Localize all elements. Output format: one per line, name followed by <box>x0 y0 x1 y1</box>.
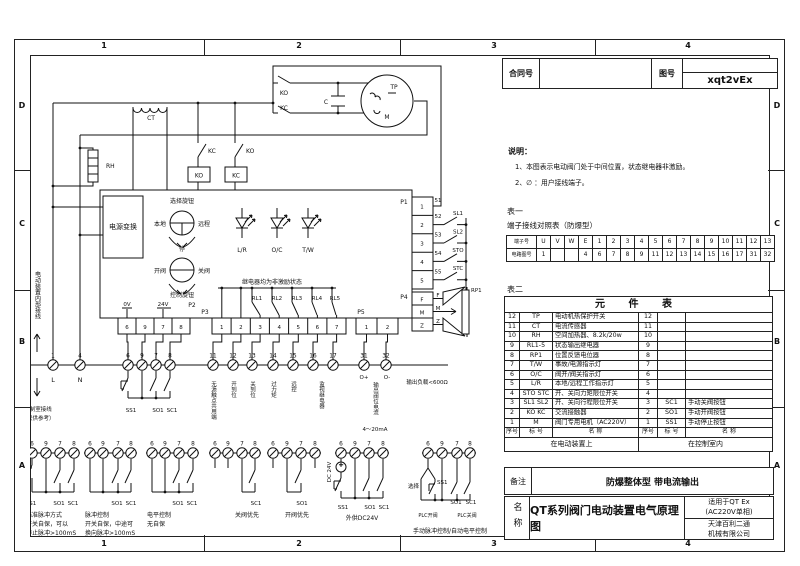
p1-label: P1 <box>400 199 408 206</box>
component-cell: 事故/电源指示灯 <box>553 360 639 370</box>
table2-title: 元 件 表 <box>505 297 773 313</box>
g1-line1: 脉冲控制 <box>85 511 109 519</box>
g0-line2: 开关自保，可以 <box>30 520 68 528</box>
g1-line3: 换向脉冲>100mS <box>85 529 135 537</box>
terminal-number: 11 <box>209 354 217 360</box>
t1-circuit-cell: 14 <box>691 249 705 262</box>
zone-col: 4 <box>681 41 695 50</box>
sl2-label: SL2 <box>453 229 463 235</box>
term-label-1617: 监视继电器 <box>318 380 325 410</box>
t1-circuit-cell: 17 <box>733 249 747 262</box>
note-line: 1、本图表示电动阀门处于中间位置，状态继电器非激励。 <box>515 161 772 171</box>
rl5-label: RL5 <box>330 296 341 302</box>
terminal-number: 6 <box>88 442 92 448</box>
terminal-number: 17 <box>329 354 337 360</box>
terminal-number: 8 <box>381 442 385 448</box>
junction-dot <box>441 499 444 502</box>
zone-col: 4 <box>681 539 695 548</box>
table2-footer-row: 序号 标 号 名 称 序号 标 号 名 称 <box>505 428 773 438</box>
zone-row: C <box>770 219 784 228</box>
wire-52: 52 <box>435 214 442 220</box>
t1-terminal-cell: 11 <box>733 236 747 249</box>
t1-circuit-row: 电路图号146789111213141516173132 <box>507 249 775 262</box>
junction-dot <box>240 287 243 290</box>
p5-label: P5 <box>357 309 365 316</box>
junction-dot <box>52 185 55 188</box>
component-row: 3SL1 SL2开、关向行程限位开关3SC1手动关阀按钮 <box>505 399 773 409</box>
terminal-number: 9 <box>44 442 48 448</box>
t2-foot-tag: 标 号 <box>520 428 553 438</box>
component-cell: 手动开阀按钮 <box>686 408 773 418</box>
drawing-no-value: xqt2vEx <box>683 73 777 88</box>
component-table: 元 件 表 12TP电动机热保护开关1211CT电流传感器1110RH空间加热器… <box>504 296 773 452</box>
terminal-number: 9 <box>101 442 105 448</box>
rl3-label: RL3 <box>292 296 303 302</box>
stc-label: STC <box>453 266 464 272</box>
terminal: 1 <box>48 354 58 371</box>
component-cell: T/W <box>520 360 553 370</box>
lamp-fault-power-icon <box>302 208 321 238</box>
terminal: 9 <box>437 442 447 459</box>
notes-title: 说明： <box>508 146 772 157</box>
schematic: 1469781112131415161731326978697869786978… <box>30 55 508 537</box>
junction-dot <box>337 112 340 115</box>
junction-dot <box>45 491 48 494</box>
wire-54: 54 <box>435 251 442 257</box>
component-cell <box>686 389 773 399</box>
contract-value <box>540 59 652 88</box>
component-cell: 交流接触器 <box>553 408 639 418</box>
terminal-number: 13 <box>248 354 256 360</box>
junction-dot <box>220 287 223 290</box>
output-current-label: 输出阀位电流 <box>372 381 379 417</box>
t1-circuit-cell: 16 <box>719 249 733 262</box>
component-cell: 7 <box>639 360 658 370</box>
component-cell: 3 <box>639 399 658 409</box>
component-cell: 阀门专用电机（AC220V） <box>553 418 639 428</box>
term-label-15: 远控 <box>290 380 297 394</box>
t1-terminal-cell: 10 <box>719 236 733 249</box>
terminal-number: 31 <box>360 354 368 360</box>
component-cell <box>658 389 686 399</box>
remark-label: 备注 <box>505 468 532 494</box>
g3-line1: 关阀优先 <box>235 511 259 519</box>
lamp-local-remote-icon <box>236 208 255 238</box>
component-cell: SO1 <box>658 408 686 418</box>
component-cell: 状态输出继电器 <box>553 341 639 351</box>
terminal: 31 <box>359 354 369 371</box>
component-cell: 开、关向行程限位开关 <box>553 399 639 409</box>
terminal: 7 <box>364 442 374 459</box>
tp-label: TP <box>389 84 398 91</box>
terminal-number: 8 <box>168 354 172 360</box>
so1-label: SO1 <box>152 408 163 414</box>
company: 天津百利二通 机械有限公司 <box>685 519 773 540</box>
t2-foot-name: 名 称 <box>553 428 639 438</box>
internal-wiring-note: 电动装置内部接线 <box>34 270 41 319</box>
title-strip: 合同号 图号 xqt2vEx <box>502 58 778 89</box>
terminal-number: 7 <box>116 442 120 448</box>
t1-terminal-cell: 9 <box>705 236 719 249</box>
component-cell: TP <box>520 313 553 323</box>
rl4-label: RL4 <box>312 296 323 302</box>
p4-label: P4 <box>400 294 408 301</box>
p1-cell: 3 <box>420 242 424 248</box>
g5-line1: 外供DC24V <box>346 514 379 522</box>
component-row: 7T/W事故/电源指示灯7 <box>505 360 773 370</box>
junction-dot <box>251 287 254 290</box>
junction-dot <box>465 260 468 263</box>
t1-terminal-cell: 3 <box>621 236 635 249</box>
terminal-number: 8 <box>191 442 195 448</box>
component-cell <box>658 332 686 342</box>
junction-dot <box>368 497 371 500</box>
component-cell: 电流传感器 <box>553 322 639 332</box>
t1-circuit-cell: 12 <box>663 249 677 262</box>
o-plus-label: O+ <box>360 375 369 381</box>
v24-label: 24V <box>158 302 169 308</box>
t1-circuit-cell: 1 <box>537 249 551 262</box>
name-side: 适用于QT Ex (AC220V单相) 天津百利二通 机械有限公司 <box>685 497 773 539</box>
term-label-12: 开到位 <box>230 381 237 398</box>
room-wiring-note: 控制室接线 <box>30 405 52 413</box>
component-cell: STO STC <box>520 389 553 399</box>
terminal-number: 8 <box>313 442 317 448</box>
t2-foot-name: 名 称 <box>686 428 773 438</box>
component-cell: 空间加热器、8.2k/20w <box>553 332 639 342</box>
sc1-label: SC1 <box>167 408 178 414</box>
t1-circuit-cell <box>565 249 579 262</box>
junction-dot <box>59 491 62 494</box>
p3-label: P3 <box>201 309 209 316</box>
ss1-label: SS1 <box>126 408 136 414</box>
g6-ss1: SS1 <box>437 480 447 486</box>
t1-circuit-cell <box>551 249 565 262</box>
p4-cell: M <box>420 311 425 317</box>
frame-tick <box>204 535 205 551</box>
t1-row-header: 端子号 <box>507 236 537 249</box>
component-cell: 阀开/阀关指示灯 <box>553 370 639 380</box>
t2-foot-seq: 序号 <box>639 428 658 438</box>
terminal-number: 7 <box>455 442 459 448</box>
zone-col: 3 <box>487 41 501 50</box>
terminal: 6 <box>123 354 133 371</box>
remote-label: 远程 <box>198 220 210 228</box>
terminal-number: 9 <box>226 442 230 448</box>
g0-ss1: SS1 <box>30 501 36 507</box>
remark-value: 防爆整体型 带电流输出 <box>532 468 773 494</box>
terminal: 8 <box>378 442 388 459</box>
note-line: 2、∅ ：用户接线端子。 <box>515 177 772 187</box>
component-cell: 8 <box>639 351 658 361</box>
terminal: 7 <box>174 442 184 459</box>
junction-dot <box>79 234 82 237</box>
component-cell: 本地/远程工作指示灯 <box>553 380 639 390</box>
terminal-number: 9 <box>353 442 357 448</box>
g1-line2: 开关自保，中途可 <box>85 520 133 528</box>
p2-cell: 9 <box>143 325 147 331</box>
junction-dot <box>155 397 158 400</box>
t1-terminal-cell: 1 <box>593 236 607 249</box>
junction-dot <box>434 499 437 502</box>
terminal-number: 9 <box>140 354 144 360</box>
power-box-label: 电源变换 <box>109 222 137 231</box>
terminal-number: 8 <box>72 442 76 448</box>
terminal: 7 <box>452 442 462 459</box>
g6-so1: SO1 <box>450 500 461 506</box>
terminal-number: 6 <box>213 442 217 448</box>
component-cell <box>658 351 686 361</box>
component-cell: 电动机热保护开关 <box>553 313 639 323</box>
terminal: 32 <box>381 354 391 371</box>
junction-dot <box>291 287 294 290</box>
terminal-number: 1 <box>51 354 55 360</box>
junction-dot <box>272 102 275 105</box>
terminal: 14 <box>268 354 278 371</box>
wire-55: 55 <box>435 269 442 275</box>
p2-cell: 7 <box>161 325 165 331</box>
terminal: 8 <box>69 442 79 459</box>
sl1-label: SL1 <box>453 211 463 217</box>
rl2-label: RL2 <box>272 296 282 302</box>
sto-label: STO <box>452 248 464 254</box>
component-cell: 手动停止按钮 <box>686 418 773 428</box>
terminal: 4 <box>75 354 85 371</box>
terminal: 9 <box>160 442 170 459</box>
component-cell: 6 <box>639 370 658 380</box>
p2-cell: 6 <box>125 325 129 331</box>
frame-tick <box>14 290 30 291</box>
p4-cell: F <box>420 298 423 304</box>
drawing-title: QT系列阀门电动装置电气原理图 <box>530 497 685 539</box>
zone-col: 2 <box>292 539 306 548</box>
frame-tick <box>14 407 30 408</box>
g0-line1: 标准脉冲方式 <box>30 511 62 519</box>
terminal: 8 <box>310 442 320 459</box>
terminal: 9 <box>350 442 360 459</box>
component-row: 1M阀门专用电机（AC220V）1SS1手动停止按钮 <box>505 418 773 428</box>
wire-53: 53 <box>435 233 442 239</box>
component-cell: SC1 <box>658 399 686 409</box>
lamp-lr-label: L/R <box>237 247 247 254</box>
terminal-number: 8 <box>468 442 472 448</box>
output-range-label: 4～20mA <box>362 427 387 433</box>
terminal: 7 <box>296 442 306 459</box>
t1-terminal-cell: 8 <box>691 236 705 249</box>
terminal-number: 9 <box>440 442 444 448</box>
terminal-number: 8 <box>253 442 257 448</box>
junction-dot <box>164 491 167 494</box>
terminal: 6 <box>336 442 346 459</box>
p4-wire: Z <box>436 319 440 325</box>
table1-subtitle: 端子接线对照表（防爆型） <box>507 220 597 231</box>
t1-circuit-cell: 11 <box>649 249 663 262</box>
component-cell: O/C <box>520 370 553 380</box>
component-row: 8RP1位置反馈电位器8 <box>505 351 773 361</box>
p1-cell: 5 <box>420 278 424 284</box>
terminal: 7 <box>151 354 161 371</box>
terminal-number: 6 <box>150 442 154 448</box>
component-cell <box>686 360 773 370</box>
junction-dot <box>102 491 105 494</box>
terminal-number: 7 <box>58 442 62 448</box>
frame-tick <box>400 39 401 55</box>
terminal: 6 <box>423 442 433 459</box>
p2-label: P2 <box>188 302 196 309</box>
terminal: 6 <box>147 442 157 459</box>
component-row: 2KO KC交流接触器2SO1手动开阀按钮 <box>505 408 773 418</box>
applicable-1: 适用于QT Ex <box>685 497 773 507</box>
g5-so1: SO1 <box>364 505 375 511</box>
table1-caption: 表一 <box>507 206 523 217</box>
terminal-number: 7 <box>299 442 303 448</box>
component-cell: KO KC <box>520 408 553 418</box>
terminal-number: 12 <box>229 354 237 360</box>
terminal-number: 32 <box>382 354 390 360</box>
g2-line2: 无自保 <box>147 520 165 528</box>
t1-row-header: 电路图号 <box>507 249 537 262</box>
name-label: 名称 <box>505 497 530 539</box>
component-cell: SL1 SL2 <box>520 399 553 409</box>
p3-cell: 7 <box>335 325 339 331</box>
frame-tick <box>768 290 784 291</box>
table2-title-row: 元 件 表 <box>505 297 773 313</box>
component-cell <box>686 313 773 323</box>
terminal-number: 7 <box>177 442 181 448</box>
t1-terminal-cell: 4 <box>635 236 649 249</box>
p4-cell: Z <box>420 324 424 330</box>
terminal: 9 <box>41 442 51 459</box>
g6-selector: 选择 <box>408 482 420 490</box>
drawing-no-cell: xqt2vEx <box>683 59 777 88</box>
terminal: 6 <box>210 442 220 459</box>
p1-cell: 1 <box>420 205 424 211</box>
kc-motor-label: KC <box>280 105 288 112</box>
junction-dot <box>311 287 314 290</box>
table2-zone-row: 在电动装置上 在控制室内 <box>505 437 773 451</box>
zone-left: 在电动装置上 <box>505 437 639 451</box>
terminal-number: 9 <box>285 442 289 448</box>
terminal: 15 <box>288 354 298 371</box>
junction-dot <box>337 82 340 85</box>
selector-knob-label: 选择旋钮 <box>170 197 194 205</box>
junction-dot <box>271 287 274 290</box>
line-n-label: N <box>78 376 83 384</box>
kc-contact-label: KC <box>208 148 216 155</box>
component-cell: L/R <box>520 380 553 390</box>
terminal: 9 <box>282 442 292 459</box>
terminal-number: 6 <box>271 442 275 448</box>
ct-label: CT <box>147 115 155 122</box>
terminal-number: 7 <box>240 442 244 448</box>
output-load-label: 输出负载<600Ω <box>406 378 447 386</box>
frame-tick <box>400 535 401 551</box>
rh-label: RH <box>106 163 115 170</box>
terminal-number: 7 <box>367 442 371 448</box>
g5-sc1: SC1 <box>379 505 390 511</box>
component-cell: 4 <box>639 389 658 399</box>
junction-dot <box>331 287 334 290</box>
junction-dot <box>141 397 144 400</box>
component-row: 11CT电流传感器11 <box>505 322 773 332</box>
terminal-number: 14 <box>269 354 277 360</box>
p3-cell: 2 <box>239 325 243 331</box>
component-cell <box>686 351 773 361</box>
terminal: 7 <box>55 442 65 459</box>
terminal: 9 <box>223 442 233 459</box>
g1-sc1: SC1 <box>126 501 137 507</box>
ko-motor-label: KO <box>280 90 289 97</box>
terminal: 17 <box>328 354 338 371</box>
terminal-number: 15 <box>289 354 297 360</box>
o-minus-label: O- <box>384 375 390 381</box>
component-cell: 位置反馈电位器 <box>553 351 639 361</box>
t1-terminal-cell: V <box>551 236 565 249</box>
g2-so1: SO1 <box>172 501 183 507</box>
terminal: 6 <box>30 442 37 459</box>
component-row: 6O/C阀开/阀关指示灯6 <box>505 370 773 380</box>
component-row: 10RH空间加热器、8.2k/20w10 <box>505 332 773 342</box>
zone-row: B <box>15 337 29 346</box>
t1-terminal-cell: 6 <box>663 236 677 249</box>
g2-line1: 电平控制 <box>147 511 171 519</box>
terminal: 7 <box>113 442 123 459</box>
component-cell: 1 <box>639 418 658 428</box>
t1-terminal-cell: W <box>565 236 579 249</box>
close-valve-label: 关阀 <box>198 267 210 275</box>
remark-block: 备注 防爆整体型 带电流输出 <box>504 467 774 495</box>
terminal-number: 6 <box>339 442 343 448</box>
component-cell: 2 <box>639 408 658 418</box>
terminal-number: 6 <box>126 354 130 360</box>
wire-51: 51 <box>435 198 442 204</box>
component-cell: RP1 <box>520 351 553 361</box>
component-cell: CT <box>520 322 553 332</box>
terminal: 11 <box>208 354 218 371</box>
stop-label: 停 <box>179 245 185 253</box>
g6-sc1: SC1 <box>466 500 477 506</box>
t1-circuit-cell: 9 <box>635 249 649 262</box>
g3-sc1: SC1 <box>251 501 262 507</box>
ko-coil-label: KO <box>195 173 204 180</box>
p3-cell: 1 <box>220 325 224 331</box>
component-row: 5L/R本地/远程工作指示灯5 <box>505 380 773 390</box>
component-cell: M <box>520 418 553 428</box>
terminal: 7 <box>237 442 247 459</box>
lamp-tw-label: T/W <box>301 247 314 254</box>
motor-label: M <box>384 114 389 121</box>
lamp-oc-label: O/C <box>272 247 283 254</box>
terminal-number: 9 <box>163 442 167 448</box>
terminal: 9 <box>98 442 108 459</box>
component-cell <box>686 332 773 342</box>
g6-plc-open: PLC开阀 <box>418 512 437 519</box>
junction-dot <box>117 491 120 494</box>
p3-cell: 4 <box>277 325 281 331</box>
g4-so1: SO1 <box>296 501 307 507</box>
terminal-number: 4 <box>78 354 82 360</box>
terminal: 8 <box>465 442 475 459</box>
contract-label: 合同号 <box>503 59 540 88</box>
term-label-11: 无源触点共用端 <box>210 381 217 421</box>
junction-dot <box>234 102 237 105</box>
zone-col: 2 <box>292 41 306 50</box>
junction-dot <box>52 206 55 209</box>
local-label: 本地 <box>154 220 166 228</box>
term-label-14: 过力矩 <box>270 380 277 399</box>
open-valve-label: 开阀 <box>154 267 166 275</box>
terminal-number: 16 <box>309 354 317 360</box>
